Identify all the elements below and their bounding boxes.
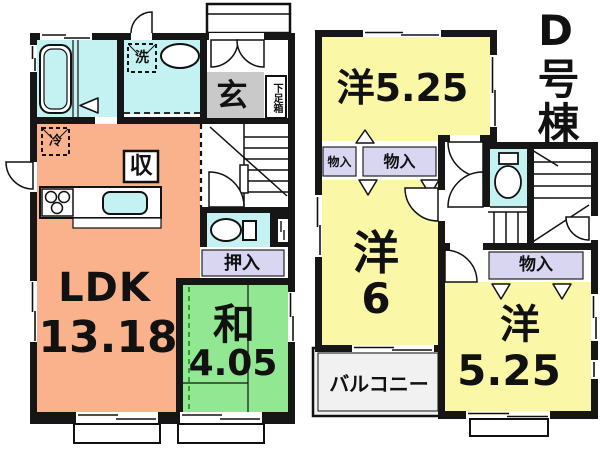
toilet-icon-2f (495, 153, 521, 198)
bay-window-2f (470, 419, 548, 436)
closet-top-left-label: 物入 (322, 150, 357, 173)
entrance-porch (207, 4, 290, 33)
sink-icon (161, 44, 199, 68)
room-top-label: 洋5.25 (320, 63, 485, 113)
kitchen-sink-icon (103, 192, 147, 214)
entry-door-left-arc (211, 40, 238, 67)
building-label: D号棟 (524, 5, 586, 145)
room-bottom-name-label: 洋 (495, 303, 545, 347)
stairs-1f (209, 124, 288, 207)
room-bottom-door-arc (445, 250, 477, 282)
floorplan: D号棟 LDK 13.18 和 4.05 玄 下足箱 押入 洗 冷 収 洋5.2… (0, 0, 600, 451)
washroom-door-arc (131, 12, 152, 33)
balcony-label: バルコニー (320, 369, 438, 399)
ldk-name-label: LDK (52, 264, 157, 312)
shoe-box-label: 下足箱 (266, 77, 286, 118)
hall-door-arc (209, 172, 244, 207)
room-bottom-size-label: 5.25 (448, 347, 570, 395)
washitsu-size-label: 4.05 (181, 342, 285, 386)
ldk-size-label: 13.18 (38, 313, 178, 363)
storage-label: 収 (124, 151, 158, 182)
toilet-door-arc-2f (448, 172, 483, 207)
washer-label: 洗 (128, 44, 156, 72)
toilet-icon-1f (211, 219, 256, 241)
closet-top-right-label: 物入 (363, 148, 436, 175)
entrance-label: 玄 (208, 76, 256, 116)
bay-window-washitsu (178, 424, 264, 443)
entry-door-right-arc (237, 40, 264, 67)
kitchen-door-arc (6, 162, 33, 189)
oshiire-label: 押入 (201, 251, 283, 276)
bay-window-ldk (74, 424, 160, 443)
landing-door-arc (566, 217, 589, 240)
fridge-label: 冷 (42, 128, 69, 155)
closet-bottom-label: 物入 (489, 253, 583, 278)
room-mid-size-label: 6 (355, 276, 397, 322)
room-mid-name-label: 洋 (347, 227, 405, 279)
